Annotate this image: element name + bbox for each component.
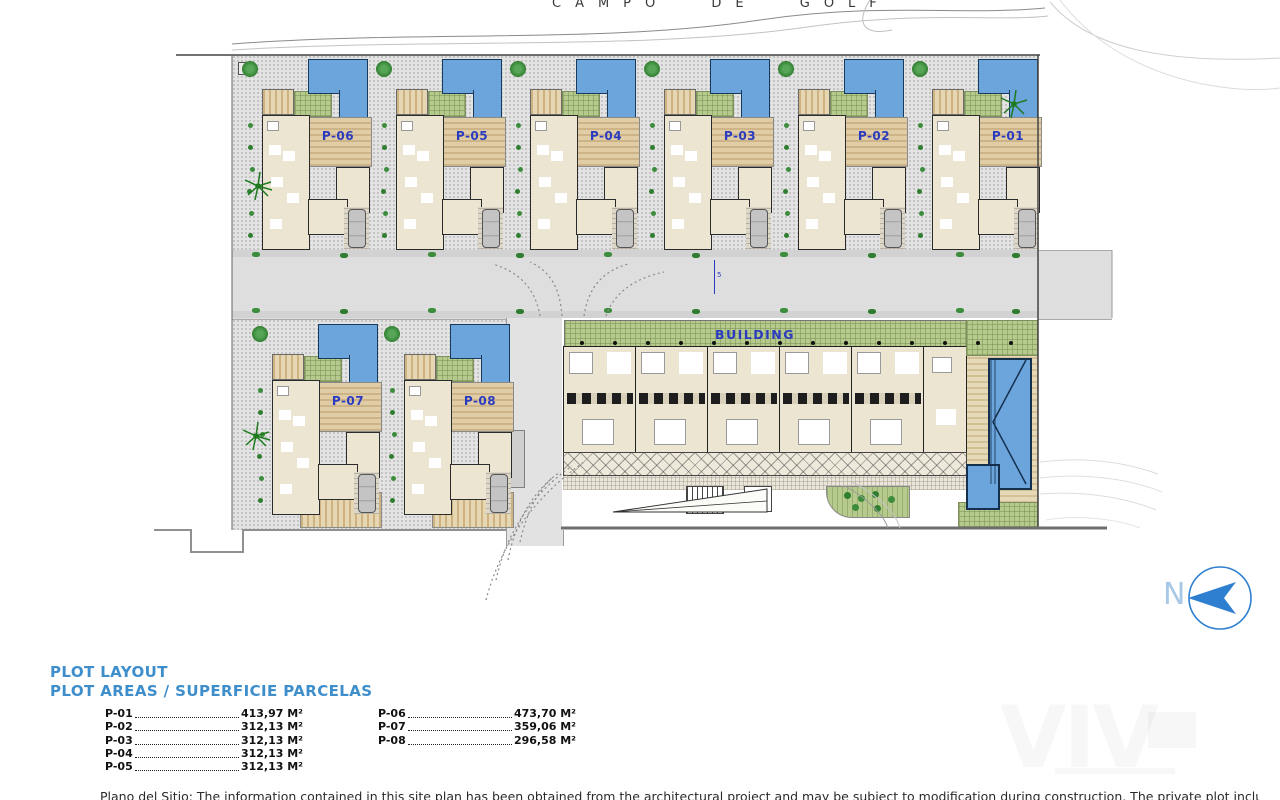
swimming-pool [349,355,378,383]
plot-id: P-07 [378,720,406,733]
bedroom [857,352,881,374]
swimming-pool [710,59,770,94]
plot-id: P-06 [378,707,406,720]
apartment-unit [707,346,781,454]
bedroom [710,199,750,235]
bedroom [713,352,737,374]
bedroom [569,352,593,374]
house-footprint [664,115,712,250]
lawn [696,91,734,117]
shrub-cluster-icon [844,492,851,499]
driveway [344,207,369,249]
car-icon [348,209,366,248]
plot-label: P-07 [316,394,380,408]
plot-area-value: 413,97 M² [241,707,303,720]
swimming-pool [607,90,636,118]
dotted-leader [135,744,239,745]
swimming-pool [741,90,770,118]
bedroom [798,419,830,445]
lawn [428,91,466,117]
bedroom [442,199,482,235]
house-footprint [932,115,980,250]
villa-plot: P-08 [378,322,512,515]
villa-plot: P-06 [236,57,370,250]
shrub-row-icon [918,123,923,128]
shrub-row-icon [390,388,395,393]
driveway [612,207,637,249]
furniture [669,121,681,131]
tree-icon [376,61,392,77]
plot-label: P-08 [448,394,512,408]
lawn [294,91,332,117]
tree-icon [644,61,660,77]
furniture [535,121,547,131]
shrub-row-icon [382,123,387,128]
pergola-posts-icon [580,341,584,345]
car-icon [1018,209,1036,248]
core-wall [639,393,705,404]
garden-pocket [826,486,910,518]
site-plan-page: CAMPO DE GOLF 5 P-06 P-05 [0,0,1280,800]
bedroom [726,419,758,445]
bedroom [978,199,1018,235]
bedroom [844,199,884,235]
sidewalk-top [232,250,1038,257]
lawn [964,91,1002,117]
plot-id: P-02 [105,720,133,733]
lawn [436,356,474,382]
plot-area-value: 473,70 M² [514,707,576,720]
apartment-unit [779,346,853,454]
dotted-leader [408,717,512,718]
plot-area-value: 312,13 M² [241,760,303,773]
footer-disclaimer: Plano del Sitio: The information contain… [100,789,1260,800]
tree-icon [510,61,526,77]
pergola-deck [262,89,294,115]
pergola-deck [396,89,428,115]
road-dimension-marker: 5 [714,260,725,294]
swimming-pool [450,324,510,359]
house-footprint [530,115,578,250]
pergola-deck [798,89,830,115]
terrain-contours-right [1040,460,1162,528]
north-label: N [1163,577,1185,612]
villa-plot: P-04 [504,57,638,250]
dotted-leader [135,770,239,771]
furniture [267,121,279,131]
core-wall [855,393,921,404]
plot-label: P-05 [440,129,504,143]
plot-area-row: P-07 359,06 M² [378,720,576,733]
golf-course-label: CAMPO DE GOLF [552,0,891,11]
plot-id: P-01 [105,707,133,720]
shrub-row-icon [650,123,655,128]
legend-subtitle: PLOT AREAS / SUPERFICIE PARCELAS [50,682,372,700]
plot-areas-right-column: P-06 473,70 M² P-07 359,06 M² P-08 296,5… [378,707,576,747]
tree-icon [242,61,258,77]
furniture [409,386,421,396]
dotted-leader [408,730,512,731]
bedroom [654,419,686,445]
apartment-unit [635,346,709,454]
dotted-leader [408,744,512,745]
driveway [746,207,771,249]
house-footprint [404,380,452,515]
swimming-pool [875,90,904,118]
apartment-unit [851,346,925,454]
legend-title: PLOT LAYOUT [50,663,168,681]
bedroom [576,199,616,235]
internal-road [232,250,1112,320]
tree-icon [252,326,268,342]
lawn [562,91,600,117]
shrub-row-icon [248,123,253,128]
stairs-icon [686,486,724,514]
bedroom [785,352,809,374]
communal-lawn [966,320,1038,356]
pergola-deck [530,89,562,115]
apartment-end-unit [923,346,967,454]
plot-area-row: P-03 312,13 M² [105,733,303,746]
car-icon [482,209,500,248]
watermark-line [1055,768,1175,774]
villa-plot: P-07 [246,322,380,515]
building-label: BUILDING [690,327,820,342]
villa-plot: P-01 [906,57,1040,250]
lawn [304,356,342,382]
plot-label: P-04 [574,129,638,143]
furniture [277,386,289,396]
plot-area-row: P-05 312,13 M² [105,760,303,773]
elevator-icon [744,486,772,512]
plot-area-row: P-08 296,58 M² [378,733,576,746]
bedroom [582,419,614,445]
plot-areas-left-column: P-01 413,97 M² P-02 312,13 M² P-03 312,1… [105,707,303,773]
house-footprint [262,115,310,250]
pergola-deck [272,354,304,380]
swimming-pool [481,355,510,383]
plot-id: P-05 [105,760,133,773]
car-icon [884,209,902,248]
plot-area-value: 312,13 M² [241,720,303,733]
swimming-pool [339,90,368,118]
core-wall [567,393,633,404]
plot-area-row: P-06 473,70 M² [378,707,576,720]
swimming-pool [473,90,502,118]
plot-label: P-01 [976,129,1040,143]
house-footprint [798,115,846,250]
building-porch-hatch [563,452,967,476]
bedroom [308,199,348,235]
bedroom [870,419,902,445]
house-footprint [396,115,444,250]
plot-id: P-04 [105,747,133,760]
kids-pool [966,464,1000,510]
car-icon [616,209,634,248]
plot-area-value: 296,58 M² [514,734,576,747]
swimming-pool [308,59,368,94]
sidewalk-bottom [232,311,1038,318]
planter-row-icon [252,252,260,257]
driveway [354,472,379,514]
dotted-leader [135,730,239,731]
plot-area-row: P-04 312,13 M² [105,747,303,760]
planter-row-icon [252,308,260,313]
bedroom [641,352,665,374]
lawn [830,91,868,117]
plot-id: P-08 [378,734,406,747]
car-icon [750,209,768,248]
swimming-pool [844,59,904,94]
tree-icon [912,61,928,77]
furniture [937,121,949,131]
plot-area-value: 359,06 M² [514,720,576,733]
plot-area-row: P-02 312,13 M² [105,720,303,733]
car-icon [358,474,376,513]
pergola-deck [664,89,696,115]
shrub-row-icon [258,388,263,393]
plot-label: P-03 [708,129,772,143]
plot-label: P-02 [842,129,906,143]
elevator-cab [749,491,767,507]
villa-plot: P-05 [370,57,504,250]
swimming-pool [576,59,636,94]
bedroom [318,464,358,500]
bedroom [450,464,490,500]
car-icon [490,474,508,513]
swimming-pool [978,59,1038,94]
plot-label: P-06 [306,129,370,143]
villa-plot: P-02 [772,57,906,250]
pergola-deck [932,89,964,115]
room [932,357,952,373]
dotted-leader [135,717,239,718]
tree-icon [778,61,794,77]
swimming-pool [318,324,378,359]
plot-area-value: 312,13 M² [241,734,303,747]
plot-id: P-03 [105,734,133,747]
driveway [486,472,511,514]
plot-area-row: P-01 413,97 M² [105,707,303,720]
driveway [880,207,905,249]
apartment-unit [563,346,637,454]
villa-plot: P-03 [638,57,772,250]
furniture [803,121,815,131]
tree-icon [384,326,400,342]
driveway [1014,207,1039,249]
core-wall [783,393,849,404]
core-wall [711,393,777,404]
shrub-row-icon [784,123,789,128]
pergola-deck [404,354,436,380]
shrub-row-icon [516,123,521,128]
house-footprint [272,380,320,515]
furniture [401,121,413,131]
watermark-block [1148,712,1196,748]
swimming-pool [1009,90,1038,118]
swimming-pool [442,59,502,94]
plot-area-value: 312,13 M² [241,747,303,760]
dotted-leader [135,757,239,758]
driveway [478,207,503,249]
